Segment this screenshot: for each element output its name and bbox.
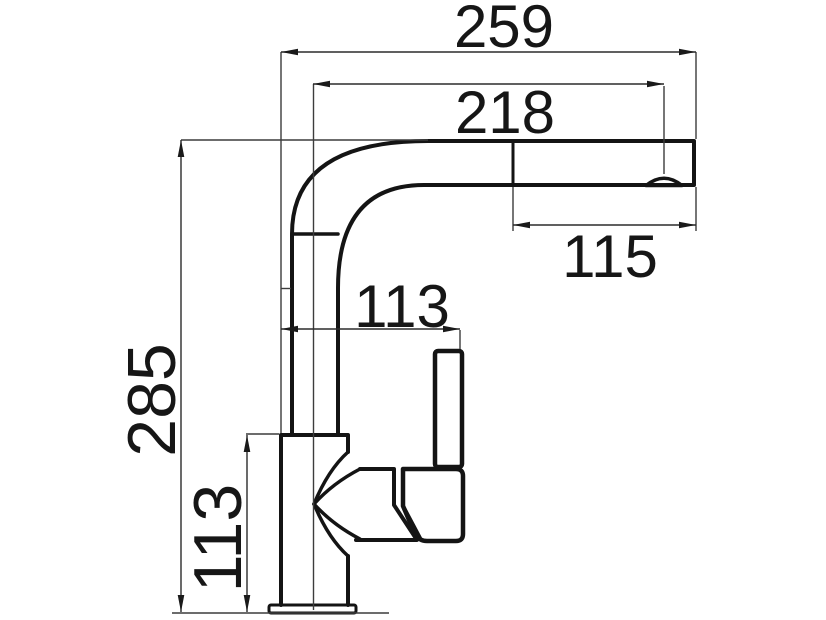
arrowhead-right — [679, 222, 696, 229]
arrowhead-down — [244, 595, 251, 612]
arrowhead-left — [281, 49, 298, 56]
base-plate — [269, 605, 356, 613]
arrowhead-left — [313, 81, 330, 88]
arrowhead-left — [281, 326, 298, 333]
dim-label-overall-reach: 259 — [454, 0, 554, 60]
dim-label-overall-height: 285 — [114, 343, 190, 456]
dim-label-spray-head-length: 115 — [562, 223, 658, 290]
arrowhead-down — [178, 595, 185, 612]
arrowhead-right — [679, 49, 696, 56]
aerator-dome — [646, 178, 682, 185]
drawing-canvas: 259 218 115 113 285 113 — [0, 0, 826, 620]
arrowhead-left — [513, 222, 530, 229]
dim-label-handle-projection: 113 — [354, 273, 450, 340]
dim-label-spout-reach: 218 — [455, 79, 555, 146]
handle-lever — [435, 351, 462, 467]
faucet-outline — [269, 141, 694, 613]
cartridge-block — [356, 469, 417, 540]
arrowhead-up — [178, 140, 185, 157]
faucet-dimension-drawing: 259 218 115 113 285 113 — [0, 0, 826, 620]
arrowhead-up — [244, 435, 251, 452]
dimension-labels: 259 218 115 113 285 113 — [114, 0, 658, 592]
dim-label-body-height: 113 — [180, 484, 256, 592]
handle-joint-fan — [314, 452, 360, 556]
arrowhead-right — [647, 81, 664, 88]
handle-housing — [403, 469, 463, 541]
